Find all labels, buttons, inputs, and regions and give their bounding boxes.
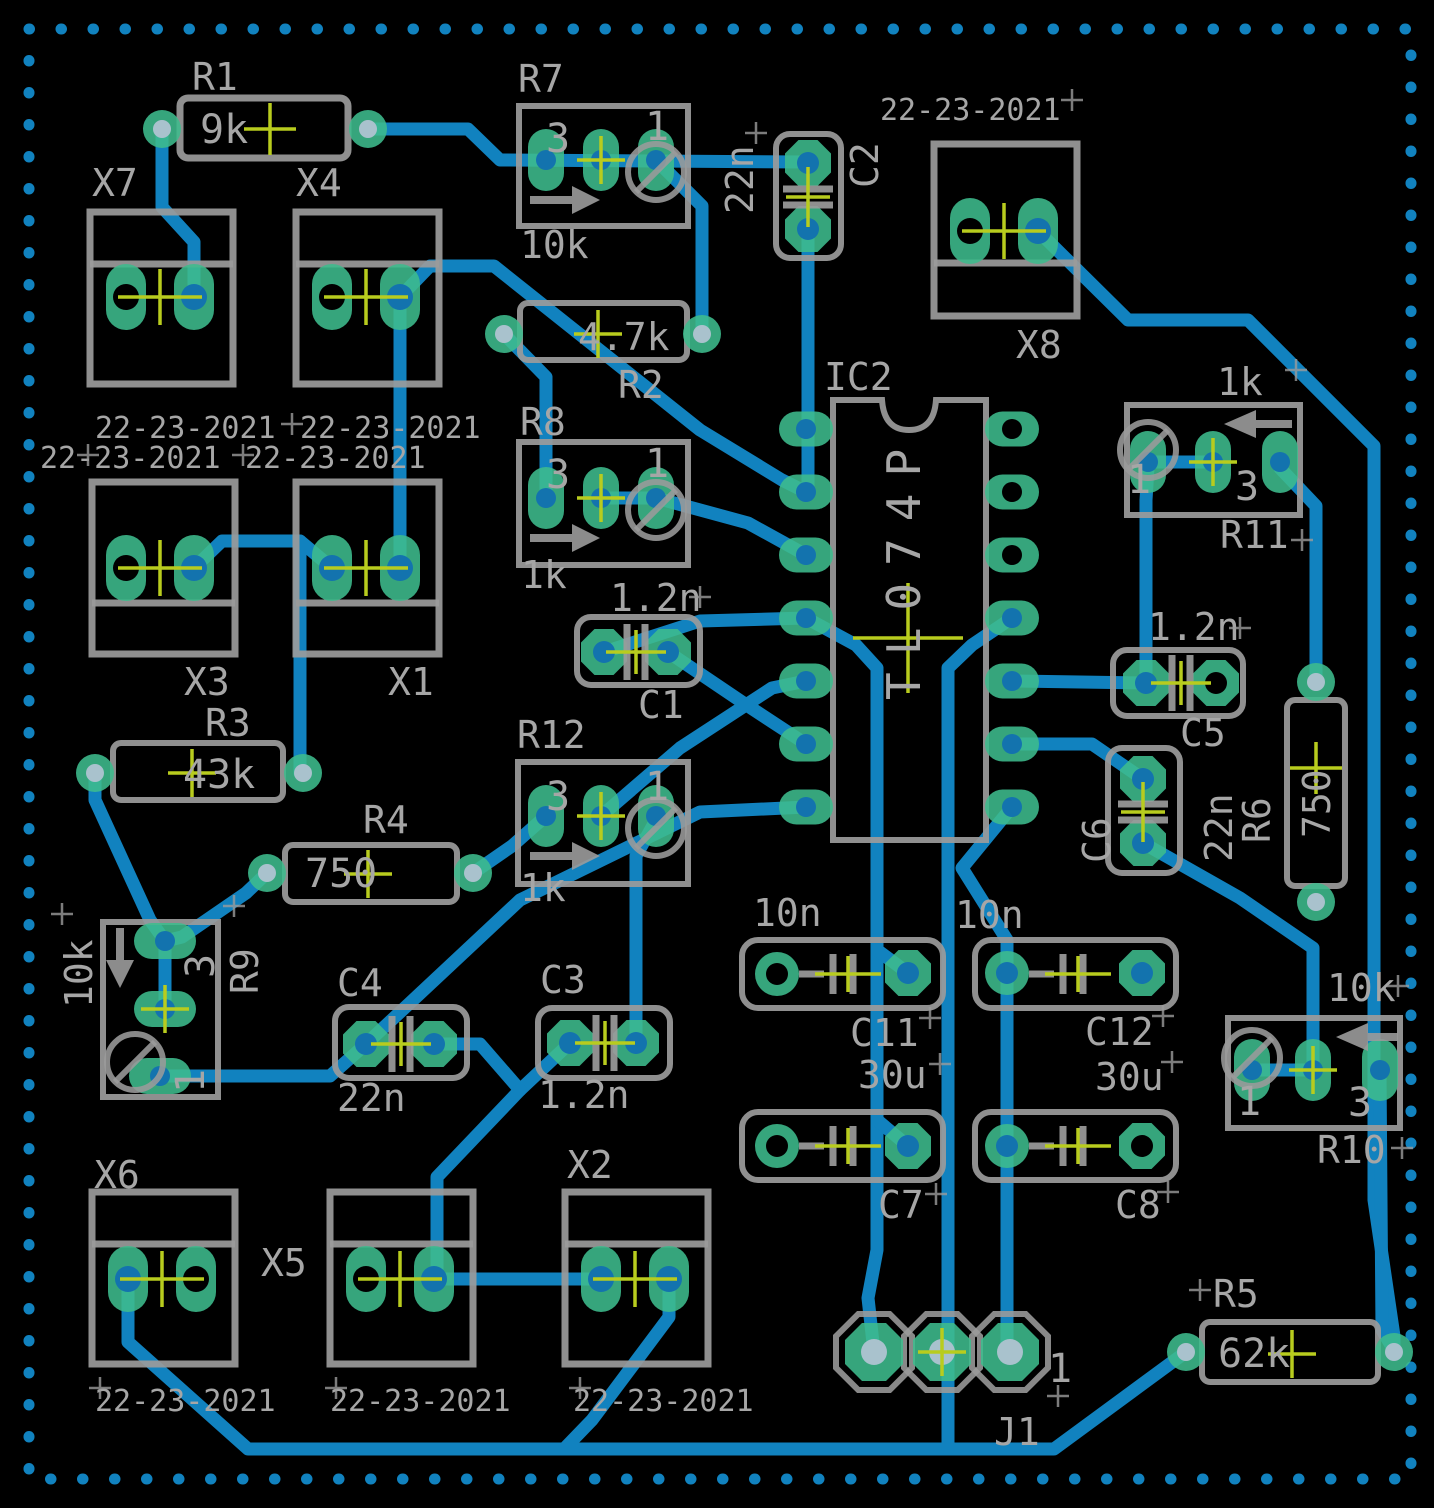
pin3-label: 3 <box>546 116 570 162</box>
value-label[interactable]: 43k <box>183 752 255 798</box>
pin3-label: 3 <box>1348 1080 1372 1126</box>
ref-label[interactable]: X1 <box>388 660 434 704</box>
component-C1[interactable]: 1.2n C1 <box>577 576 702 727</box>
component-X1[interactable]: X1 <box>296 482 439 704</box>
pin3-label: 3 <box>178 954 224 978</box>
ref-label[interactable]: R2 <box>618 363 664 407</box>
ref-label[interactable]: R4 <box>363 798 409 842</box>
ref-label[interactable]: X3 <box>184 660 230 704</box>
wiper-arrow-icon <box>1336 1023 1368 1051</box>
drill-hole <box>258 864 276 882</box>
ref-label[interactable]: X5 <box>261 1241 307 1285</box>
drill-hole <box>861 1339 887 1365</box>
component-R1[interactable]: R1 9k <box>143 55 387 158</box>
ref-label[interactable]: C3 <box>540 958 586 1002</box>
pin1-label: 1 <box>645 104 669 150</box>
drill-hole <box>897 962 919 984</box>
ref-label[interactable]: C2 <box>843 142 887 188</box>
component-C7[interactable]: 30u C7 <box>742 1053 943 1227</box>
drill-hole <box>1307 893 1325 911</box>
drill-hole <box>897 1135 919 1157</box>
drill-hole <box>464 864 482 882</box>
trace[interactable] <box>601 681 806 816</box>
wiper-arrow-icon <box>1224 410 1256 438</box>
value-label[interactable]: 22n <box>718 145 762 214</box>
value-label[interactable]: 1.2n <box>610 576 702 620</box>
drill-hole <box>796 797 816 817</box>
drill-hole <box>796 482 816 502</box>
value-label[interactable]: 1.2n <box>1148 605 1240 649</box>
ref-label[interactable]: X4 <box>296 161 342 205</box>
value-label[interactable]: 30u <box>1095 1055 1164 1099</box>
drill-hole <box>1307 673 1325 691</box>
value-label[interactable]: TL074P <box>877 432 931 700</box>
ref-label[interactable]: R6 <box>1235 797 1279 843</box>
drill-hole <box>294 764 312 782</box>
trace[interactable] <box>668 652 806 744</box>
drill-hole <box>996 962 1018 984</box>
drill-hole <box>1385 1343 1403 1361</box>
drill-hole <box>1131 962 1153 984</box>
drill-hole <box>1002 734 1022 754</box>
drill-hole <box>1370 1060 1390 1080</box>
ref-label[interactable]: R7 <box>518 57 564 101</box>
drill-hole <box>796 734 816 754</box>
value-label[interactable]: 750 <box>305 851 377 897</box>
component-R6[interactable]: R6 750 <box>1235 663 1345 921</box>
date-label[interactable]: 22-23-2021 <box>245 441 426 476</box>
component-IC2[interactable]: IC2 TL074P <box>779 355 1039 840</box>
ref-label[interactable]: C6 <box>1075 817 1119 863</box>
ref-label[interactable]: R11 <box>1220 513 1289 557</box>
drill-hole <box>1002 797 1022 817</box>
value-label[interactable]: 750 <box>1295 769 1339 838</box>
component-R3[interactable]: R3 43k <box>76 701 322 800</box>
ref-label[interactable]: C5 <box>1180 711 1226 755</box>
ref-label[interactable]: J1 <box>994 1410 1040 1454</box>
date-label[interactable]: 22-23-2021 <box>330 1384 511 1419</box>
ref-label[interactable]: C1 <box>638 683 684 727</box>
date-label[interactable]: 22-23-2021 <box>95 1384 276 1419</box>
value-label[interactable]: 1k <box>1217 360 1263 404</box>
value-label[interactable]: 1.2n <box>538 1073 630 1117</box>
value-label[interactable]: 10n <box>955 893 1024 937</box>
ref-label[interactable]: C7 <box>878 1183 924 1227</box>
drill-hole <box>495 325 513 343</box>
pin1-label: 1 <box>645 764 669 810</box>
component-R12[interactable]: R12 3 1 1k <box>517 713 688 910</box>
drill-hole <box>155 931 175 951</box>
pin3-label: 3 <box>546 774 570 820</box>
drill-hole <box>1002 608 1022 628</box>
origin-cross <box>1045 1128 1111 1164</box>
component-R4[interactable]: R4 750 <box>248 798 492 902</box>
pin3-label: 3 <box>546 452 570 498</box>
ref-label[interactable]: R5 <box>1213 1272 1259 1316</box>
trace[interactable] <box>194 541 332 568</box>
drill-hole <box>1270 452 1290 472</box>
component-R7[interactable]: R7 3 1 10k <box>518 57 688 267</box>
trace[interactable] <box>1038 231 1394 1352</box>
ref-label[interactable]: C12 <box>1085 1010 1154 1054</box>
ref-label[interactable]: R12 <box>517 713 586 757</box>
component-X2[interactable]: X2 <box>565 1143 708 1364</box>
component-X6[interactable]: X6 <box>92 1153 235 1364</box>
component-C11[interactable]: 10n C11 <box>742 891 943 1055</box>
component-C5[interactable]: 1.2n C5 <box>1113 605 1243 755</box>
ref-label[interactable]: X6 <box>94 1153 140 1197</box>
pin1-label: 1 <box>1237 1079 1261 1125</box>
ref-label[interactable]: X8 <box>1016 323 1062 367</box>
component-C4[interactable]: C4 22n <box>335 961 467 1120</box>
origin-cross <box>1045 956 1111 992</box>
drill-hole <box>693 325 711 343</box>
ref-label[interactable]: R9 <box>223 948 267 994</box>
value-label[interactable]: 10k <box>57 939 101 1008</box>
value-label[interactable]: 22n <box>337 1076 406 1120</box>
value-label[interactable]: 62k <box>1218 1331 1290 1377</box>
value-label[interactable]: 9k <box>200 107 248 153</box>
value-label[interactable]: 10n <box>753 891 822 935</box>
component-C6[interactable]: C6 22n <box>1075 748 1241 873</box>
drill-hole <box>153 120 171 138</box>
value-label[interactable]: 10k <box>520 223 589 267</box>
drill-hole <box>766 963 788 985</box>
value-label[interactable]: 30u <box>858 1053 927 1097</box>
ref-label[interactable]: IC2 <box>824 355 893 399</box>
component-C2[interactable]: 22n C2 <box>718 134 887 258</box>
drill-hole <box>359 120 377 138</box>
pin3-label: 3 <box>1235 464 1259 510</box>
drill-hole <box>1177 1343 1195 1361</box>
pin1-label: 1 <box>645 441 669 487</box>
component-X3[interactable]: X3 <box>92 482 235 704</box>
ref-label[interactable]: R3 <box>205 701 251 745</box>
ref-label[interactable]: R1 <box>192 55 238 99</box>
value-label[interactable]: 4.7k <box>578 315 670 359</box>
pin1-label: 1 <box>1048 1346 1072 1392</box>
ref-label[interactable]: X7 <box>92 161 138 205</box>
pin1-label: 1 <box>168 1069 214 1093</box>
origin-cross <box>244 103 296 155</box>
drill-hole <box>796 545 816 565</box>
trace[interactable] <box>437 1090 520 1279</box>
component-R8[interactable]: R8 3 1 1k <box>519 400 688 597</box>
ref-label[interactable]: R10 <box>1317 1128 1386 1172</box>
value-label[interactable]: 1k <box>521 553 567 597</box>
wiper-arrow-icon <box>106 960 134 988</box>
pin1-label: 1 <box>1127 457 1151 503</box>
drill-hole <box>766 1135 788 1157</box>
trace[interactable] <box>400 266 806 492</box>
component-C12[interactable]: 10n C12 <box>955 893 1176 1054</box>
trace[interactable] <box>962 807 1012 1352</box>
value-label[interactable]: 10k <box>1327 966 1396 1010</box>
drill-hole <box>86 764 104 782</box>
pcb-board-canvas: R1 9k X7 X4 X3 X1 <box>0 0 1434 1508</box>
date-label[interactable]: 22-23-2021 <box>573 1384 754 1419</box>
drill-hole <box>1002 671 1022 691</box>
drill-hole <box>796 419 816 439</box>
drill-hole <box>1002 545 1022 565</box>
date-label[interactable]: 22-23-2021 <box>880 93 1061 128</box>
value-label[interactable]: 1k <box>520 866 566 910</box>
drill-hole <box>997 1339 1023 1365</box>
drill-hole <box>1002 482 1022 502</box>
ref-label[interactable]: C11 <box>850 1011 919 1055</box>
drill-hole <box>996 1135 1018 1157</box>
drill-hole <box>1002 419 1022 439</box>
ref-label[interactable]: X2 <box>567 1143 613 1187</box>
drill-hole <box>796 671 816 691</box>
component-R2[interactable]: 4.7k R2 <box>485 303 721 407</box>
component-C3[interactable]: C3 1.2n <box>538 958 670 1117</box>
ref-label[interactable]: C8 <box>1115 1183 1161 1227</box>
drill-hole <box>796 608 816 628</box>
drill-hole <box>1131 1135 1153 1157</box>
date-label[interactable]: 22-23-2021 <box>40 441 221 476</box>
ref-label[interactable]: R8 <box>520 400 566 444</box>
ref-label[interactable]: C4 <box>337 961 383 1005</box>
